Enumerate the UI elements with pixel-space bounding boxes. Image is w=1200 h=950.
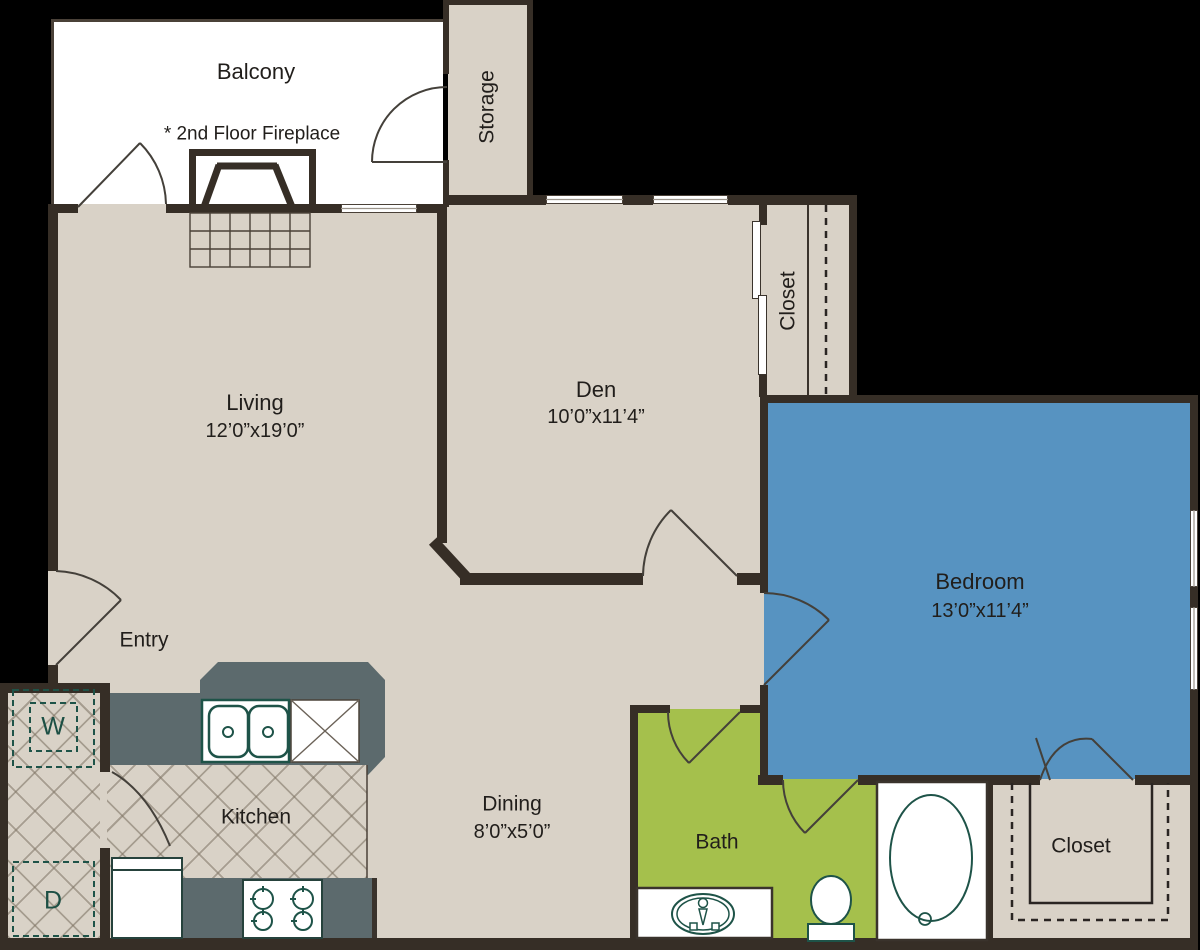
living-label: Living bbox=[226, 392, 283, 414]
storage-door-arc bbox=[372, 87, 447, 162]
hearth-tiles-icon bbox=[190, 213, 310, 267]
bedroom-closet-label: Closet bbox=[1051, 836, 1111, 857]
bath-door-arc bbox=[668, 712, 740, 763]
vanity-sink-icon bbox=[637, 888, 772, 938]
den-label: Den bbox=[576, 379, 616, 401]
entry-door-arc bbox=[56, 571, 121, 665]
hall-closet-shelf bbox=[808, 205, 826, 395]
balcony-door-arc bbox=[78, 143, 166, 207]
living-dims-label: 12’0”x19’0” bbox=[206, 421, 305, 441]
laundry-door-arc bbox=[112, 772, 170, 846]
refrigerator-icon bbox=[112, 858, 182, 938]
floor-plan: Balcony * 2nd Floor Fireplace Storage Li… bbox=[0, 0, 1200, 950]
dishwasher-icon bbox=[291, 700, 359, 762]
dryer-label: D bbox=[44, 889, 62, 914]
bedroom-door-arc bbox=[764, 593, 829, 685]
storage-label: Storage bbox=[477, 70, 498, 144]
bedroom-dims-label: 13’0”x11’4” bbox=[931, 601, 1028, 621]
hall-closet-label: Closet bbox=[778, 271, 799, 331]
bathtub-icon bbox=[877, 782, 987, 940]
balcony-label: Balcony bbox=[217, 61, 295, 83]
kitchen-sink-icon bbox=[202, 700, 289, 762]
bedroom-label: Bedroom bbox=[935, 571, 1024, 593]
dining-dims-label: 8’0”x5’0” bbox=[474, 822, 551, 842]
fireplace-firebox-icon bbox=[204, 165, 292, 207]
fireplace-note-label: * 2nd Floor Fireplace bbox=[164, 125, 340, 144]
bedroom-closet-doors-arc bbox=[1036, 738, 1133, 780]
dining-label: Dining bbox=[482, 794, 542, 815]
entry-label: Entry bbox=[119, 630, 168, 651]
stove-icon bbox=[243, 880, 322, 938]
den-door-arc bbox=[643, 510, 737, 576]
toilet-icon bbox=[808, 876, 854, 941]
window-mullions bbox=[341, 200, 1194, 691]
washer-label: W bbox=[41, 715, 65, 740]
bath-bedroom-door-arc bbox=[783, 780, 858, 833]
kitchen-label: Kitchen bbox=[221, 807, 291, 828]
bath-label: Bath bbox=[695, 832, 738, 853]
wall-den-angle bbox=[433, 541, 468, 579]
den-dims-label: 10’0”x11’4” bbox=[547, 407, 644, 427]
